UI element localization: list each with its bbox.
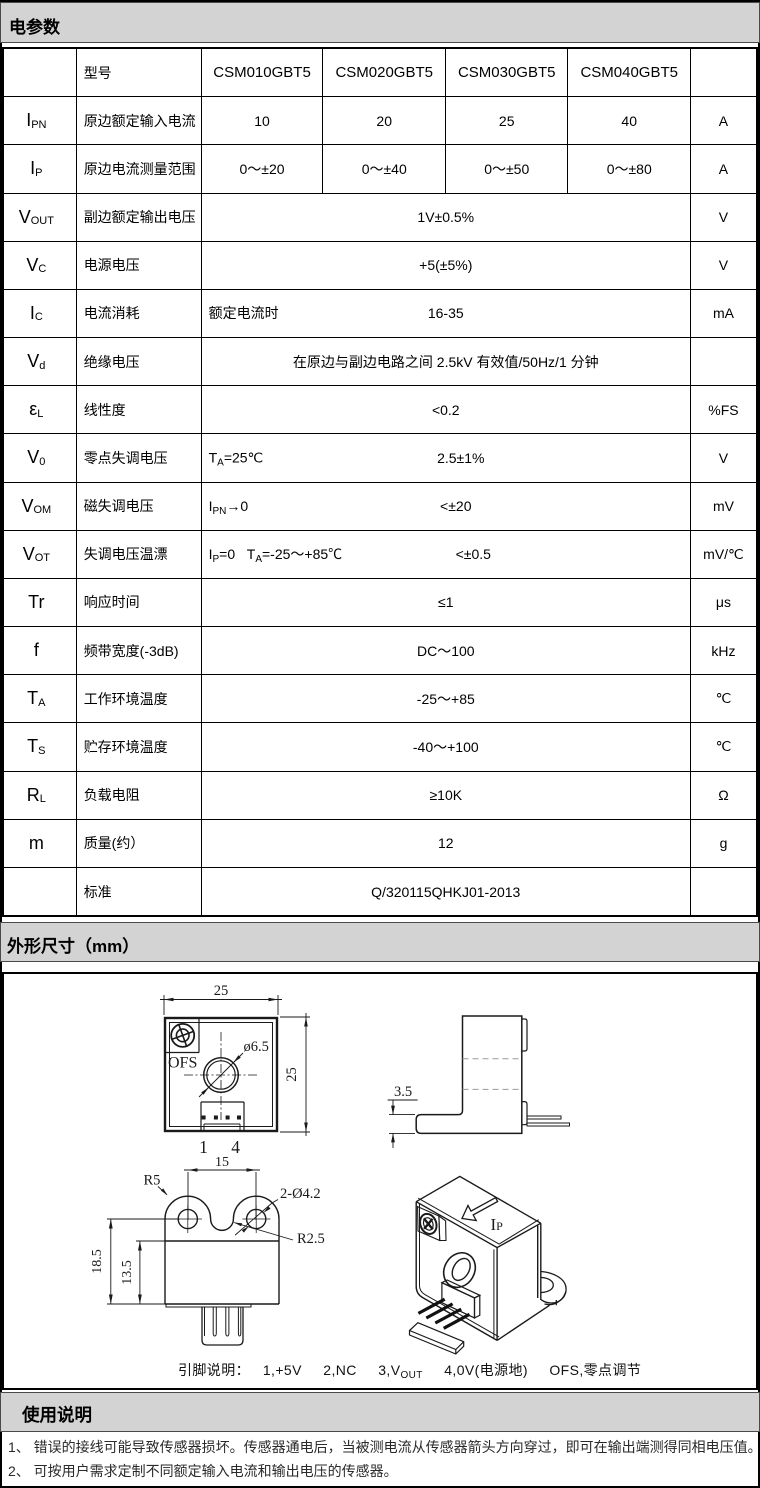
svg-text:25: 25 xyxy=(214,983,229,999)
svg-text:R5: R5 xyxy=(144,1173,161,1189)
svg-text:R2.5: R2.5 xyxy=(297,1231,325,1247)
svg-text:13.5: 13.5 xyxy=(120,1260,135,1285)
svg-text:25: 25 xyxy=(284,1067,300,1082)
svg-text:15: 15 xyxy=(215,1155,229,1170)
svg-text:3.5: 3.5 xyxy=(394,1084,412,1100)
svg-text:2-Ø4.2: 2-Ø4.2 xyxy=(280,1186,321,1202)
svg-text:ø6.5: ø6.5 xyxy=(244,1039,269,1055)
svg-text:IP: IP xyxy=(491,1215,504,1234)
svg-text:4: 4 xyxy=(231,1137,240,1157)
svg-text:1: 1 xyxy=(199,1137,208,1157)
svg-text:18.5: 18.5 xyxy=(90,1249,105,1274)
svg-text:OFS: OFS xyxy=(168,1055,197,1072)
